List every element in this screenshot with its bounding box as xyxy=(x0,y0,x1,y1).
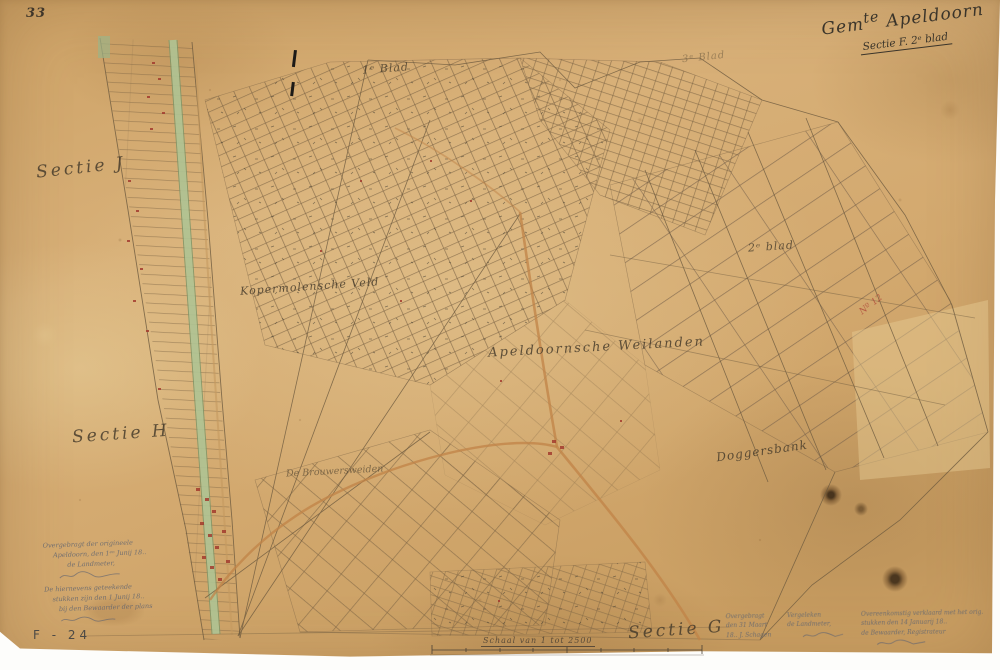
note-line: 18.. J. Schagen xyxy=(726,630,771,640)
signature-scribble xyxy=(875,638,927,648)
certification-notes-right: Overgebragt den 31 Maart 18.. J. Schagen… xyxy=(726,608,984,653)
scanned-map-sheet: Gemte Apeldoorn Sectie F. 2ᵉ blad 33 F -… xyxy=(0,0,1000,670)
signature-scribble xyxy=(59,613,117,625)
note-line: de Landmeter, xyxy=(787,619,845,629)
sheet-page-number: 33 xyxy=(26,6,46,21)
signature-scribble xyxy=(58,569,122,581)
note-line: de Bewaarder, Registrateur xyxy=(861,626,984,637)
surveyor-notes-left: Overgebragt der origineele Apeldoorn, de… xyxy=(43,535,196,629)
archive-code: F - 24 xyxy=(33,628,91,642)
note-column: Overeenkomstig verklaard met het orig. s… xyxy=(861,608,984,651)
note-column: Overgebragt den 31 Maart 18.. J. Schagen xyxy=(726,611,772,653)
scale-caption: Schaal van 1 tot 2500 xyxy=(481,636,595,647)
note-column: Vergeleken de Landmeter, xyxy=(787,610,846,652)
signature-scribble xyxy=(801,630,845,640)
note-line: den 31 Maart xyxy=(726,621,771,631)
